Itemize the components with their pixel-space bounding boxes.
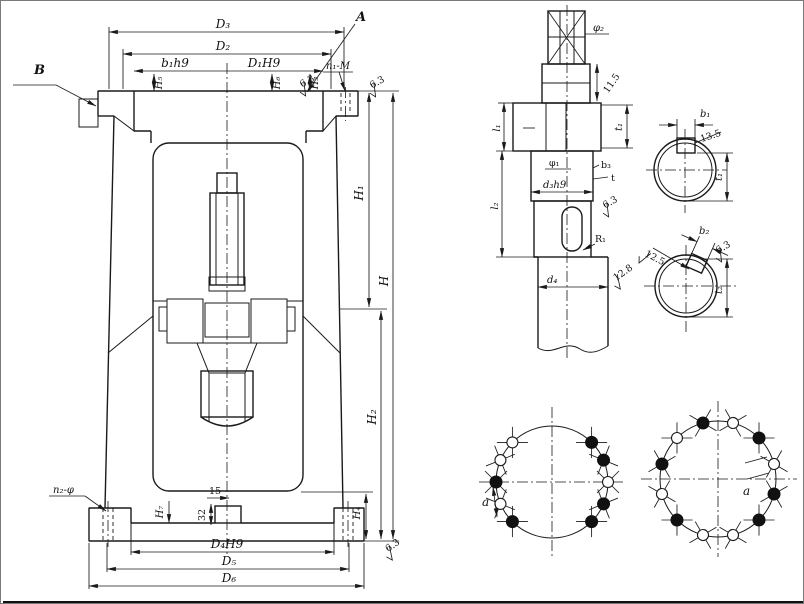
svg-text:6.3: 6.3 [368,74,387,91]
roughness-section-b-63: 6.3 [711,239,736,263]
dim-label-d6: D₆ [221,571,237,585]
top-flange [79,87,358,143]
dim-label-h7: H₇ [155,506,166,520]
dim-label-b3: b₃ [601,160,611,171]
gear-assembly [153,277,303,373]
dim-h7: H₇ [155,501,169,523]
dim-label-h6: H₆ [272,77,283,91]
dim-label-phi1: φ₁ [549,158,560,169]
dim-h5: H₅ [154,74,165,91]
dim-label-d4h9: D₄H9 [210,537,244,551]
shaft-detail-view: φ₂ 11.5 l₁ t₁ φ₁ d₃h9 b₃ t [490,5,638,361]
roughness-top-right: 6.3 [365,74,390,98]
dim-label-h1: H₁ [352,185,366,201]
dim-label-t1-a: t₁ [714,173,725,181]
label-n2-phi: n₂-φ [53,485,74,496]
svg-text:6.3: 6.3 [601,194,620,211]
callout-n2phi: n₂-φ [49,485,106,511]
side-lug [79,99,98,127]
dim-label-l2: l₂ [490,202,501,209]
dim-label-angle-a-left: a [482,495,489,509]
rib-right [303,316,340,353]
dim-label-h: H [377,275,391,287]
dim-label-h2: H₂ [365,409,379,425]
dim-label-l1: l₁ [492,124,503,131]
dim-d4h9: D₄H9 [131,525,334,555]
dim-label-t: t [611,173,615,184]
main-assembly-view: D₃ D₂ b₁h9 D₁H9 H₅ H₆ H₃ 6.3 [13,10,406,589]
roughness-section-b-125: 12.5 [636,247,666,274]
dim-l1: l₁ [492,103,513,151]
dim-label-11-5: 11.5 [601,72,622,96]
dim-label-angle-a-right: a [743,484,750,498]
svg-text:12.8: 12.8 [611,262,635,283]
dim-t1-section-a: t₁ [685,153,733,201]
right-dims: H₁ H H₂ H₄ 6.3 [301,91,406,562]
dim-label-13-5: 13.5 [699,128,723,145]
dim-32: 32 [197,504,211,525]
bolt-circle-left: a [479,407,625,557]
callout-view-b: B [13,63,96,106]
dim-label-r1: R₁ [595,234,606,245]
dim-label-phi2: φ₂ [593,23,604,34]
engineering-drawing: D₃ D₂ b₁h9 D₁H9 H₅ H₆ H₃ 6.3 [1,1,804,604]
bearing-right [251,299,287,343]
shaft-section-b: b₂ 6.3 12.5 t₂ [636,226,737,335]
dim-label-15: 15 [209,486,221,497]
dim-d1h9: b₁h9 D₁H9 [134,56,323,71]
roughness-shaft-128: 12.8 [608,262,638,290]
bottom-boss [215,506,241,523]
label-view-a: A [354,10,366,25]
dim-label-h4: H₄ [352,507,363,521]
dim-15: 15 [207,486,229,498]
dim-label-d3h9: d₃h9 [543,180,567,191]
dim-label-h5: H₅ [154,77,165,91]
dim-label-d4-shaft: d₄ [547,275,557,286]
svg-text:6.3: 6.3 [714,239,733,256]
dim-label-t1: t₁ [614,123,625,131]
label-view-b: B [33,63,45,78]
rib-left [108,316,153,353]
dim-label-d1h9: D₁H9 [247,56,281,70]
roughness-shaft-63: 6.3 [598,194,623,218]
dim-t1-shaft: t₁ [601,105,633,148]
dim-t2-section-b: t₂ [686,259,733,317]
dim-label-32: 32 [197,509,208,521]
bolt-circle-right: a [641,401,797,557]
bearing-left [167,299,203,343]
dim-label-t2: t₂ [714,286,725,294]
dim-label-d3: D₃ [215,17,231,31]
dim-label-d5: D₅ [221,554,237,568]
drawing-sheet: D₃ D₂ b₁h9 D₁H9 H₅ H₆ H₃ 6.3 [0,0,804,604]
keyway-slot [562,207,582,251]
dim-label-b1h9: b₁h9 [161,56,189,70]
callout-view-a: A [307,10,366,92]
dim-h6: H₆ [272,74,283,91]
dim-label-b1: b₁ [700,109,710,120]
label-n1-m: n₁-M [326,61,351,72]
housing-body [105,116,343,508]
output-shaft [201,371,253,426]
inner-chamber [153,143,303,491]
svg-text:6.3: 6.3 [383,537,402,555]
dim-l2: l₂ [490,151,534,257]
shaft-section-a: b₁ 13.5 t₁ [646,109,733,213]
callout-n1m: n₁-M [323,61,353,91]
dim-label-b2: b₂ [699,226,709,237]
dim-label-d2: D₂ [215,39,231,53]
